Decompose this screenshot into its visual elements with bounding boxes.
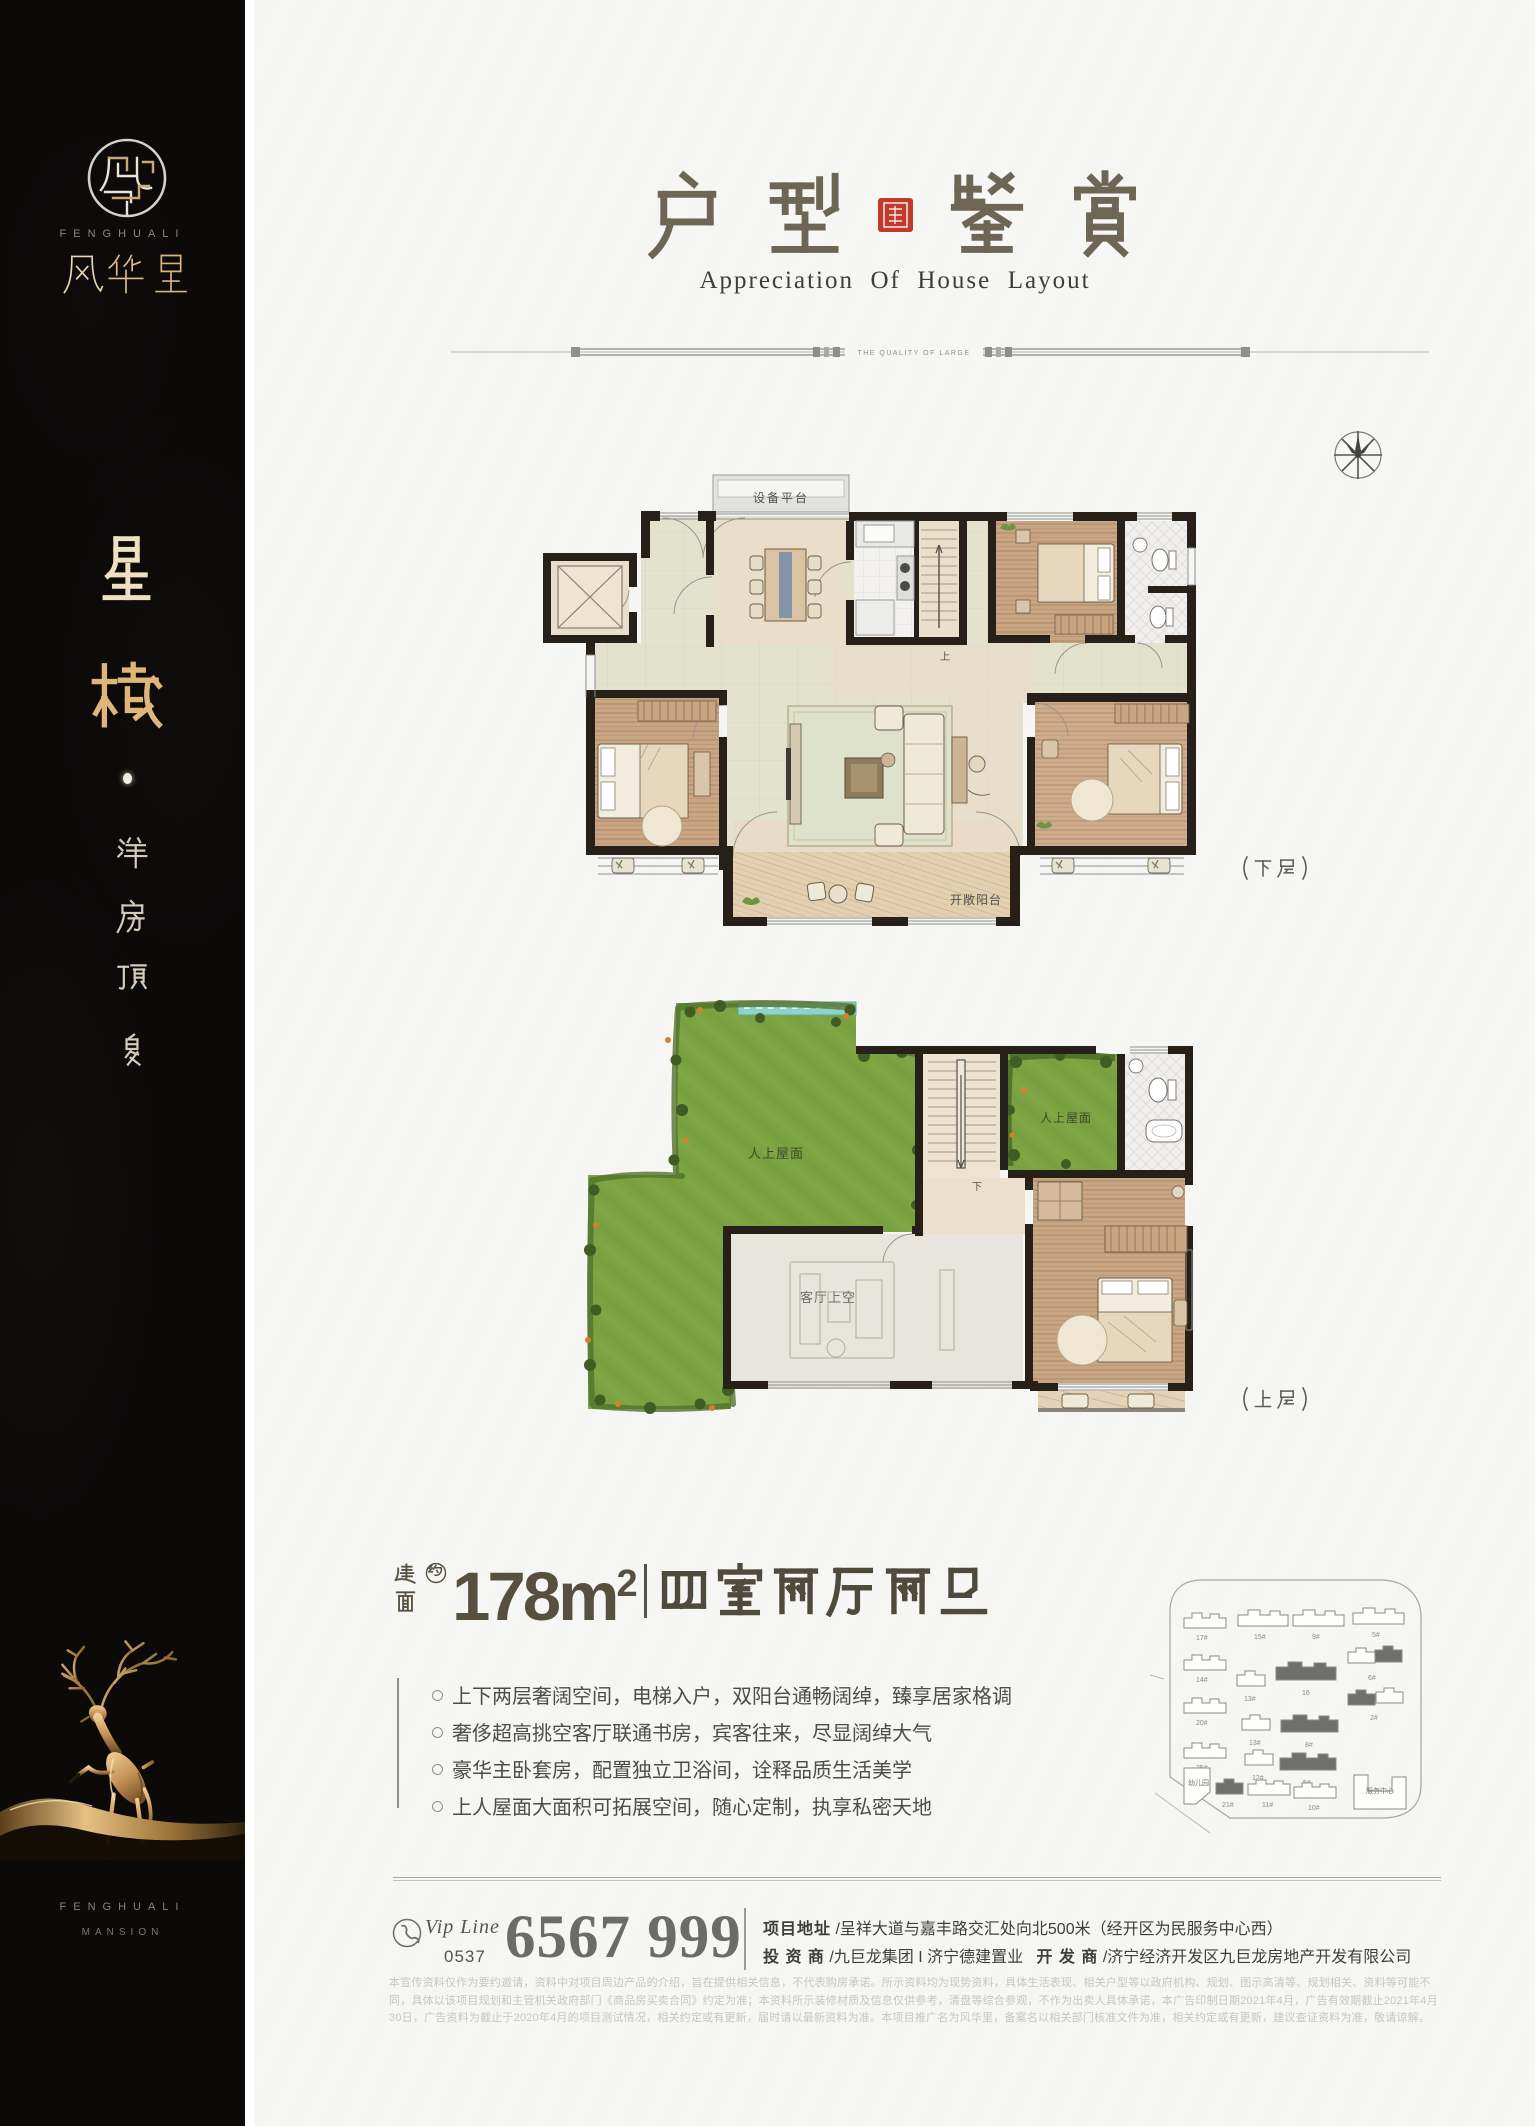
svg-text:上: 上 [940,651,950,663]
svg-text:幼儿园: 幼儿园 [1188,1778,1209,1787]
svg-text:13#: 13# [1249,1740,1261,1747]
svg-text:设备平台: 设备平台 [753,490,809,505]
svg-text:21#: 21# [1222,1802,1234,1809]
svg-text:客厅上空: 客厅上空 [800,1290,856,1305]
svg-text:6#: 6# [1368,1675,1376,1682]
svg-text:13#: 13# [1244,1696,1256,1703]
svg-text:11#: 11# [1262,1802,1273,1809]
svg-text:THE QUALITY OF LARGE: THE QUALITY OF LARGE [857,350,970,357]
svg-text:15#: 15# [1254,1634,1266,1641]
svg-text:8#: 8# [1305,1742,1313,1749]
svg-text:14#: 14# [1196,1677,1208,1684]
svg-text:5#: 5# [1372,1632,1380,1639]
svg-text:2#: 2# [1370,1715,1378,1722]
svg-text:服务中心: 服务中心 [1366,1786,1394,1795]
svg-text:16: 16 [1302,1690,1310,1697]
svg-text:开敞阳台: 开敞阳台 [950,892,1002,907]
svg-text:20#: 20# [1196,1720,1208,1727]
svg-text:17#: 17# [1196,1635,1208,1642]
svg-text:人上屋面: 人上屋面 [748,1146,804,1161]
svg-text:10#: 10# [1308,1805,1320,1812]
svg-text:下: 下 [972,1182,982,1193]
svg-text:9#: 9# [1312,1634,1320,1641]
svg-text:人上屋面: 人上屋面 [1040,1111,1092,1125]
